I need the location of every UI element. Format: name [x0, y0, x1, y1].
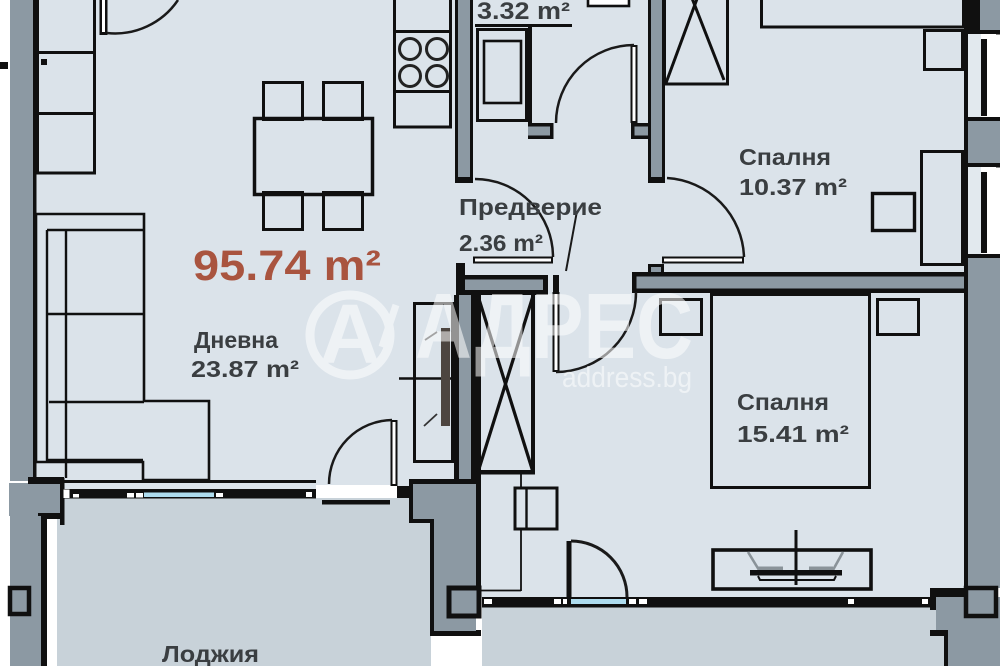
svg-text:15.41 m²: 15.41 m² — [737, 421, 849, 447]
svg-text:2.36 m²: 2.36 m² — [459, 230, 543, 256]
svg-text:А: А — [320, 287, 381, 381]
svg-text:Лоджия: Лоджия — [162, 641, 259, 666]
svg-text:address.bg: address.bg — [562, 362, 692, 394]
svg-text:95.74 m²: 95.74 m² — [193, 242, 381, 290]
svg-text:3.32 m²: 3.32 m² — [477, 0, 570, 25]
svg-text:Дневна: Дневна — [194, 327, 279, 353]
svg-text:10.37 m²: 10.37 m² — [739, 174, 847, 200]
svg-text:Предверие: Предверие — [459, 194, 602, 220]
svg-text:Спалня: Спалня — [739, 144, 831, 170]
svg-text:Спалня: Спалня — [737, 389, 829, 415]
svg-text:23.87 m²: 23.87 m² — [191, 356, 299, 382]
